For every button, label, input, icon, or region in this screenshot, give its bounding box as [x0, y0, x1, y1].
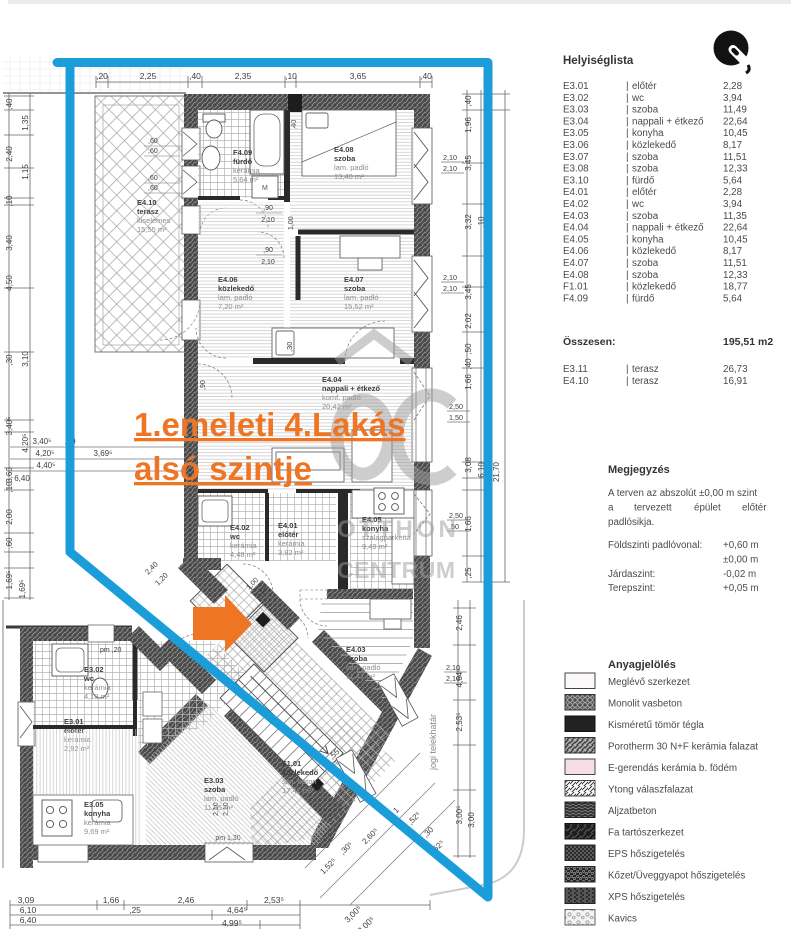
svg-text:1,35: 1,35: [21, 115, 30, 131]
svg-text:,30: ,30: [285, 342, 294, 352]
svg-text:E4.10: E4.10: [563, 376, 589, 387]
svg-text:E4.07: E4.07: [563, 258, 589, 269]
svg-text:,60: ,60: [5, 537, 14, 549]
svg-text:6,10: 6,10: [20, 905, 37, 915]
svg-text:2,46: 2,46: [178, 895, 195, 905]
svg-text:lam. padló: lam. padló: [334, 163, 369, 172]
svg-text:terasz: terasz: [632, 376, 659, 387]
svg-text:11,55 m²: 11,55 m²: [204, 803, 234, 812]
svg-text:E4.08: E4.08: [563, 270, 589, 281]
svg-text:CENTRUM: CENTRUM: [337, 557, 456, 583]
svg-text:16,91: 16,91: [723, 376, 748, 387]
svg-text:,60: ,60: [148, 175, 158, 182]
svg-text:3,09: 3,09: [18, 895, 35, 905]
svg-text:közlekedő: közlekedő: [632, 140, 677, 151]
svg-text:3,40⁵: 3,40⁵: [5, 417, 14, 436]
svg-text:OTTHON: OTTHON: [337, 516, 459, 543]
svg-text:E4.01: E4.01: [563, 187, 589, 198]
svg-text:6,40: 6,40: [14, 474, 30, 483]
svg-text:3,94: 3,94: [723, 199, 743, 210]
svg-text:22,64: 22,64: [723, 116, 748, 127]
svg-text:szoba: szoba: [632, 211, 659, 222]
svg-text:26,73: 26,73: [723, 364, 748, 375]
svg-text:2,10: 2,10: [446, 663, 460, 672]
svg-text:wc: wc: [83, 674, 94, 683]
svg-text:-0,02 m: -0,02 m: [723, 569, 756, 580]
svg-text:11,49: 11,49: [723, 105, 747, 116]
svg-text:12,33: 12,33: [723, 164, 748, 175]
svg-text:|: |: [626, 152, 629, 163]
svg-text:E4.04: E4.04: [322, 375, 342, 384]
svg-text:tervezett: tervezett: [634, 503, 672, 514]
svg-text:konyha: konyha: [84, 809, 111, 818]
svg-text:2,02: 2,02: [464, 313, 473, 329]
svg-text:szoba: szoba: [204, 785, 226, 794]
svg-text:|: |: [626, 81, 629, 92]
svg-text:1,96: 1,96: [464, 117, 473, 133]
svg-text:3,60: 3,60: [5, 467, 14, 483]
svg-text:21,70: 21,70: [492, 461, 501, 482]
svg-text:Fa tartószerkezet: Fa tartószerkezet: [608, 828, 684, 839]
svg-text:3,69⁵: 3,69⁵: [94, 449, 113, 458]
svg-text:2,10: 2,10: [446, 674, 460, 683]
svg-text:2,25: 2,25: [140, 71, 157, 81]
svg-text:|: |: [626, 187, 629, 198]
svg-text:2,46: 2,46: [455, 615, 464, 631]
svg-text:E3.08: E3.08: [563, 164, 589, 175]
svg-text:F1.01: F1.01: [563, 282, 588, 293]
svg-text:wc: wc: [631, 199, 644, 210]
svg-text:Meglévő szerkezet: Meglévő szerkezet: [608, 677, 690, 688]
svg-text:1,50: 1,50: [449, 413, 463, 422]
svg-text:E3.05: E3.05: [84, 800, 104, 809]
svg-text:,90: ,90: [263, 247, 273, 254]
svg-text:,40: ,40: [464, 358, 473, 370]
svg-text:fürdő: fürdő: [233, 157, 253, 166]
svg-text:Kisméretű tömör tégla: Kisméretű tömör tégla: [608, 720, 704, 731]
svg-text:konyha: konyha: [632, 128, 664, 139]
svg-text:E4.06: E4.06: [563, 246, 589, 257]
svg-text:4,18 m²: 4,18 m²: [84, 692, 110, 701]
svg-text:,10: ,10: [285, 71, 297, 81]
svg-text:,40: ,40: [420, 71, 432, 81]
svg-text:1,66: 1,66: [464, 374, 473, 390]
svg-text:1,66: 1,66: [464, 516, 473, 532]
svg-text:4,40⁵: 4,40⁵: [37, 461, 56, 470]
svg-text:,50: ,50: [464, 343, 473, 355]
svg-text:pm ,20: pm ,20: [100, 647, 122, 654]
svg-text:terasz: terasz: [632, 364, 659, 375]
svg-text:F4.09: F4.09: [233, 148, 252, 157]
svg-text:nappali + étkező: nappali + étkező: [632, 223, 704, 234]
svg-text:közlekedő: közlekedő: [632, 282, 677, 293]
svg-text:±0,00 m: ±0,00 m: [723, 555, 758, 566]
svg-text:Aljzatbeton: Aljzatbeton: [608, 806, 656, 817]
svg-text:E3.07: E3.07: [563, 152, 589, 163]
svg-text:|: |: [626, 223, 629, 234]
svg-text:+0,05 m: +0,05 m: [723, 583, 759, 594]
svg-text:,90: ,90: [263, 205, 273, 212]
svg-text:E4.05: E4.05: [563, 234, 589, 245]
svg-text:|: |: [626, 270, 629, 281]
svg-text:,60: ,60: [148, 185, 158, 192]
svg-text:kerámia: kerámia: [278, 539, 306, 548]
svg-text:Helyiséglista: Helyiséglista: [563, 55, 634, 67]
svg-text:11,51: 11,51: [723, 258, 747, 269]
svg-text:Kőzet/Üveggyapot hőszigetelés: Kőzet/Üveggyapot hőszigetelés: [608, 871, 745, 882]
svg-text:|: |: [626, 211, 629, 222]
svg-text:3,08: 3,08: [464, 457, 473, 473]
svg-text:padlósikja.: padlósikja.: [608, 517, 654, 528]
svg-text:12,33: 12,33: [723, 270, 748, 281]
svg-text:előtér: előtér: [742, 503, 767, 514]
svg-text:15,55 m²: 15,55 m²: [137, 225, 167, 234]
svg-text:1,66: 1,66: [103, 895, 120, 905]
svg-text:Anyagjelölés: Anyagjelölés: [608, 659, 676, 671]
svg-text:wc: wc: [631, 93, 644, 104]
svg-text:1,00: 1,00: [288, 216, 295, 230]
svg-text:közlekedő: közlekedő: [218, 284, 255, 293]
svg-text:Terepszint:: Terepszint:: [608, 583, 655, 594]
svg-text:22,64: 22,64: [723, 223, 748, 234]
svg-text:kerámia: kerámia: [230, 541, 258, 550]
svg-text:Porotherm 30 N+F kerámia falaz: Porotherm 30 N+F kerámia falazat: [608, 742, 758, 753]
svg-text:lam. padló: lam. padló: [204, 794, 239, 803]
svg-text:8,17: 8,17: [723, 140, 742, 151]
svg-text:7,20 m²: 7,20 m²: [218, 302, 244, 311]
svg-text:18,77: 18,77: [723, 282, 748, 293]
svg-text:E3.05: E3.05: [563, 128, 589, 139]
svg-text:2,53⁵: 2,53⁵: [455, 713, 464, 732]
svg-text:szoba: szoba: [632, 258, 659, 269]
svg-text:|: |: [626, 246, 629, 257]
svg-text:3,92 m²: 3,92 m²: [278, 548, 304, 557]
svg-text:6,40: 6,40: [20, 915, 37, 925]
svg-text:jogi telekhatár: jogi telekhatár: [428, 714, 438, 771]
svg-text:3,40⁵: 3,40⁵: [33, 437, 52, 446]
svg-text:11,51: 11,51: [723, 152, 747, 163]
svg-text:2,10: 2,10: [443, 153, 457, 162]
svg-text:|: |: [626, 105, 629, 116]
svg-text:8,17: 8,17: [723, 246, 742, 257]
svg-text:kerámia: kerámia: [233, 166, 261, 175]
svg-text:,40: ,40: [189, 71, 201, 81]
svg-text:2,35: 2,35: [235, 71, 252, 81]
svg-text:Kavics: Kavics: [608, 914, 637, 925]
svg-text:E3.02: E3.02: [563, 93, 589, 104]
svg-text:3,00⁵: 3,00⁵: [455, 806, 464, 825]
svg-text:E4.08: E4.08: [334, 145, 354, 154]
svg-text:4,48 m²: 4,48 m²: [230, 550, 256, 559]
svg-text:Ytong válaszfalazat: Ytong válaszfalazat: [608, 785, 693, 796]
svg-text:EPS hőszigetelés: EPS hőszigetelés: [608, 849, 685, 860]
svg-text:3,65: 3,65: [350, 71, 367, 81]
svg-text:E-gerendás kerámia b. födém: E-gerendás kerámia b. födém: [608, 763, 737, 774]
svg-text:nappali + étkező: nappali + étkező: [632, 116, 704, 127]
svg-text:E3.01: E3.01: [563, 81, 589, 92]
svg-text:5,64 m²: 5,64 m²: [233, 175, 259, 184]
svg-text:E4.04: E4.04: [563, 223, 589, 234]
svg-text:3,40: 3,40: [5, 235, 14, 251]
svg-text:15,52 m²: 15,52 m²: [344, 302, 374, 311]
svg-text:|: |: [626, 376, 629, 387]
svg-text:szoba: szoba: [632, 164, 659, 175]
svg-text:4,20⁵: 4,20⁵: [21, 434, 30, 453]
svg-text:A terven az abszolút ±0,00 m s: A terven az abszolút ±0,00 m szint: [608, 488, 757, 499]
svg-text:2,10: 2,10: [261, 217, 275, 224]
svg-text:E3.04: E3.04: [563, 116, 589, 127]
svg-text:,10: ,10: [5, 481, 14, 493]
svg-text:szoba: szoba: [346, 654, 368, 663]
svg-text:11,47 m²: 11,47 m²: [346, 672, 376, 681]
svg-text:10,45: 10,45: [723, 128, 748, 139]
svg-text:E3.10: E3.10: [563, 175, 589, 186]
svg-text:E3.02: E3.02: [84, 665, 104, 674]
svg-text:E4.06: E4.06: [218, 275, 238, 284]
svg-text:Összesen:: Összesen:: [563, 335, 616, 348]
svg-text:alsó szintje: alsó szintje: [134, 450, 312, 487]
svg-text:3,10: 3,10: [21, 351, 30, 367]
svg-text:épület: épület: [694, 503, 721, 514]
svg-text:5,64: 5,64: [723, 175, 743, 186]
svg-text:,40: ,40: [5, 98, 14, 110]
svg-text:3,45: 3,45: [464, 284, 473, 300]
svg-text:E3.03: E3.03: [204, 776, 224, 785]
svg-text:3,45: 3,45: [464, 155, 473, 171]
svg-text:a: a: [608, 503, 614, 514]
svg-text:3,00: 3,00: [467, 812, 476, 828]
svg-text:közlekedő: közlekedő: [632, 246, 677, 257]
svg-text:,60: ,60: [148, 148, 158, 155]
svg-text:szoba: szoba: [334, 154, 356, 163]
svg-text:2,00: 2,00: [5, 509, 14, 525]
svg-text:lam. padló: lam. padló: [346, 663, 381, 672]
svg-text:4,50: 4,50: [5, 275, 14, 291]
svg-text:konyha: konyha: [632, 234, 664, 245]
svg-text:9,69 m²: 9,69 m²: [84, 827, 110, 836]
svg-text:9,49 m²: 9,49 m²: [362, 542, 388, 551]
svg-text:11,35: 11,35: [723, 211, 747, 222]
svg-text:13,40 m²: 13,40 m²: [334, 172, 364, 181]
svg-text:kerámia: kerámia: [84, 683, 112, 692]
svg-text:E3.06: E3.06: [563, 140, 589, 151]
svg-text:,20: ,20: [96, 71, 108, 81]
svg-text:+0,60 m: +0,60 m: [723, 540, 759, 551]
svg-text:|: |: [626, 140, 629, 151]
svg-text:|: |: [626, 116, 629, 127]
svg-text:|: |: [626, 128, 629, 139]
svg-text:5,64: 5,64: [723, 293, 743, 304]
svg-text:lam. padló: lam. padló: [218, 293, 253, 302]
svg-text:fürdő: fürdő: [632, 175, 655, 186]
svg-text:F1.01: F1.01: [282, 759, 301, 768]
svg-text:|: |: [626, 93, 629, 104]
svg-text:M: M: [262, 185, 268, 192]
svg-text:előtér: előtér: [632, 81, 657, 92]
svg-text:közlekedő: közlekedő: [282, 768, 319, 777]
svg-text:F4.09: F4.09: [563, 293, 588, 304]
svg-text:2,40: 2,40: [5, 146, 14, 162]
svg-text:2,10: 2,10: [443, 164, 457, 173]
svg-text:előtér: előtér: [278, 530, 299, 539]
svg-text:szoba: szoba: [632, 270, 659, 281]
svg-text:|: |: [626, 258, 629, 269]
svg-text:|: |: [626, 293, 629, 304]
svg-text:fürdő: fürdő: [632, 293, 655, 304]
svg-text:E4.07: E4.07: [344, 275, 364, 284]
svg-text:szoba: szoba: [344, 284, 366, 293]
svg-text:E3.03: E3.03: [563, 105, 589, 116]
svg-text:|: |: [626, 164, 629, 175]
svg-text:2,10: 2,10: [443, 273, 457, 282]
svg-text:,30: ,30: [5, 354, 14, 366]
svg-text:szoba: szoba: [632, 152, 659, 163]
svg-text:E4.02: E4.02: [230, 523, 250, 532]
svg-text:nappali + étkező: nappali + étkező: [322, 384, 381, 393]
svg-text:17,47 m²: 17,47 m²: [282, 786, 312, 795]
svg-text:,40: ,40: [464, 95, 473, 107]
svg-text:2,53⁵: 2,53⁵: [264, 895, 284, 905]
svg-text:3,94: 3,94: [723, 93, 743, 104]
svg-text:4,99⁵: 4,99⁵: [222, 918, 242, 928]
svg-text:195,51 m2: 195,51 m2: [723, 336, 773, 348]
svg-text:,90: ,90: [200, 380, 207, 390]
svg-text:Monolit vasbeton: Monolit vasbeton: [608, 699, 682, 710]
svg-text:wc: wc: [229, 532, 240, 541]
svg-text:2,28: 2,28: [723, 187, 743, 198]
svg-text:E4.10: E4.10: [137, 198, 157, 207]
svg-text:4,64⁵: 4,64⁵: [227, 905, 247, 915]
svg-text:előtér: előtér: [632, 187, 657, 198]
svg-text:|: |: [626, 282, 629, 293]
svg-text:E4.02: E4.02: [563, 199, 589, 210]
svg-text:,60: ,60: [148, 138, 158, 145]
svg-text:|: |: [626, 364, 629, 375]
svg-text:E4.03: E4.03: [563, 211, 589, 222]
svg-text:E3.01: E3.01: [64, 717, 84, 726]
svg-text:3,32: 3,32: [464, 214, 473, 230]
svg-text:,25: ,25: [129, 905, 141, 915]
svg-text:10,45: 10,45: [723, 234, 748, 245]
svg-text:|: |: [626, 234, 629, 245]
svg-text:E4.01: E4.01: [278, 521, 298, 530]
svg-text:,25: ,25: [464, 567, 473, 579]
svg-text:|: |: [626, 175, 629, 186]
svg-text:kerámia: kerámia: [84, 818, 112, 827]
svg-text:szoba: szoba: [632, 105, 659, 116]
svg-text:E4.03: E4.03: [346, 645, 366, 654]
svg-text:XPS hőszigetelés: XPS hőszigetelés: [608, 892, 685, 903]
svg-text:2,10: 2,10: [443, 284, 457, 293]
svg-text:2,10: 2,10: [261, 259, 275, 266]
svg-text:Járdaszint:: Járdaszint:: [608, 569, 655, 580]
svg-text:sim. beton: sim. beton: [282, 777, 317, 786]
svg-text:4,20⁵: 4,20⁵: [36, 449, 55, 458]
svg-text:1,69⁵: 1,69⁵: [5, 571, 14, 590]
svg-text:1,69⁵: 1,69⁵: [18, 580, 27, 599]
svg-text:1,15: 1,15: [21, 164, 30, 180]
svg-text:,10: ,10: [5, 195, 14, 207]
svg-text:Megjegyzés: Megjegyzés: [608, 464, 670, 476]
svg-text:kiselemes: kiselemes: [137, 216, 171, 225]
svg-text:terasz: terasz: [137, 207, 159, 216]
svg-text:Földszinti padlóvonal:: Földszinti padlóvonal:: [608, 540, 702, 551]
svg-text:E3.11: E3.11: [563, 364, 588, 375]
svg-text:lam. padló: lam. padló: [344, 293, 379, 302]
svg-text:1.emeleti 4.Lakás: 1.emeleti 4.Lakás: [134, 406, 406, 443]
svg-text:|: |: [626, 199, 629, 210]
svg-text:2,28: 2,28: [723, 81, 743, 92]
